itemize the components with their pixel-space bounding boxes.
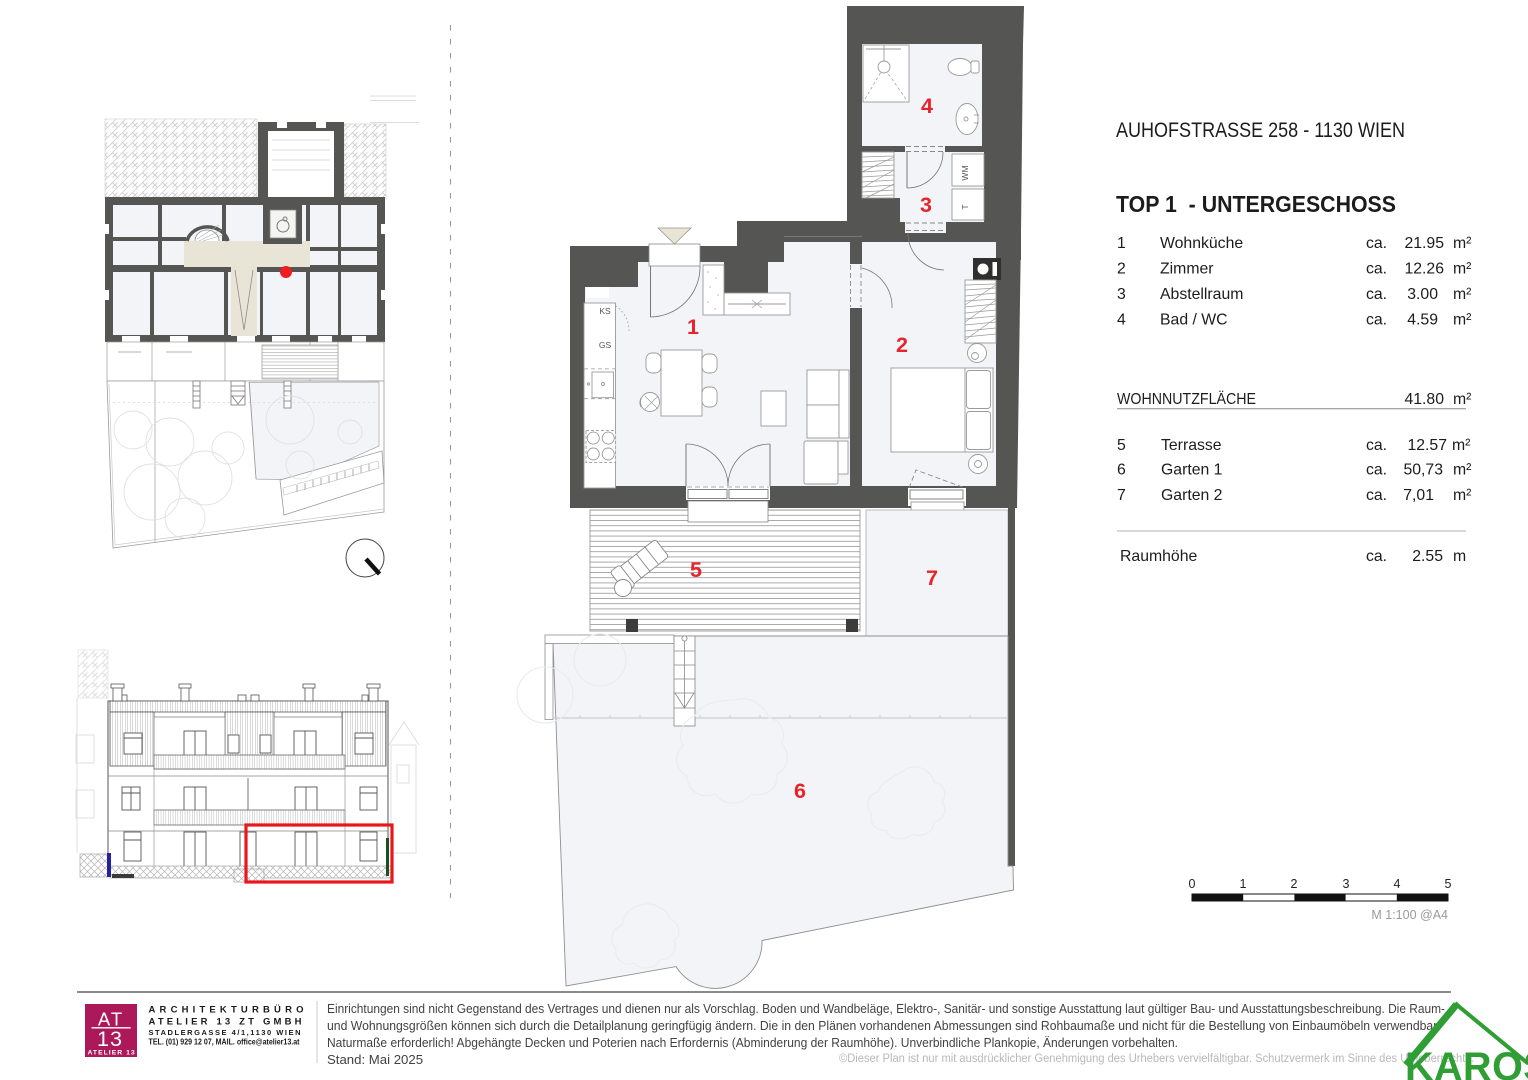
svg-text:Naturmaße erforderlich! Abgehä: Naturmaße erforderlich! Abgehängte Decke… [327,1035,1178,1050]
svg-text:13: 13 [97,1027,123,1051]
svg-text:6: 6 [1117,462,1126,479]
svg-text:3: 3 [1343,877,1350,891]
svg-text:7,01: 7,01 [1403,487,1434,504]
svg-text:Wohnküche: Wohnküche [1160,235,1243,252]
svg-text:Garten 1: Garten 1 [1161,462,1223,479]
svg-text:Bad / WC: Bad / WC [1160,312,1228,329]
svg-text:4: 4 [1117,312,1126,329]
svg-text:m: m [1453,548,1466,565]
svg-text:0: 0 [1189,877,1196,891]
svg-text:ATELIER 13: ATELIER 13 [88,1050,136,1057]
svg-text:ca.: ca. [1366,312,1387,329]
svg-text:12.57: 12.57 [1407,437,1447,454]
svg-text:7: 7 [1117,487,1126,504]
svg-text:3.00: 3.00 [1407,286,1438,303]
svg-text:41.80: 41.80 [1404,391,1444,408]
svg-text:Einrichtungen sind nicht Gegen: Einrichtungen sind nicht Gegenstand des … [327,1001,1445,1016]
svg-text:ARCHITEKTURBÜRO: ARCHITEKTURBÜRO [149,1005,304,1016]
svg-text:Terrasse: Terrasse [1161,437,1222,454]
svg-text:2: 2 [1291,877,1298,891]
svg-text:Zimmer: Zimmer [1160,261,1214,278]
svg-text:2.55: 2.55 [1412,548,1443,565]
svg-text:m²: m² [1453,391,1471,408]
svg-text:5: 5 [1117,437,1126,454]
svg-text:ca.: ca. [1366,437,1387,454]
svg-text:ca.: ca. [1366,462,1387,479]
svg-text:ATELIER 13 ZT GMBH: ATELIER 13 ZT GMBH [149,1017,302,1028]
svg-text:m²: m² [1452,437,1470,454]
svg-text:STADLERGASSE 4/1,1130 WIEN: STADLERGASSE 4/1,1130 WIEN [149,1028,301,1037]
svg-text:KAROS: KAROS [1405,1045,1528,1080]
svg-text:Raumhöhe: Raumhöhe [1120,548,1197,565]
svg-text:T: T [960,204,970,209]
svg-text:6: 6 [794,779,806,803]
svg-text:M 1:100 @A4: M 1:100 @A4 [1371,908,1448,922]
svg-text:2: 2 [1117,261,1126,278]
svg-text:m²: m² [1453,312,1471,329]
svg-text:GS: GS [599,340,612,350]
svg-text:3: 3 [920,193,932,217]
svg-text:Garten 2: Garten 2 [1161,487,1222,504]
svg-text:KS: KS [599,306,611,316]
svg-text:1: 1 [687,315,699,339]
svg-text:ca.: ca. [1366,261,1387,278]
svg-text:4: 4 [921,94,933,118]
svg-text:4.59: 4.59 [1407,312,1438,329]
svg-text:1: 1 [1117,235,1126,252]
svg-text:5: 5 [1445,877,1452,891]
svg-text:ca.: ca. [1366,487,1387,504]
svg-text:Abstellraum: Abstellraum [1160,286,1243,303]
svg-text:m²: m² [1453,261,1471,278]
svg-text:und Wohnungsgrößen können sich: und Wohnungsgrößen können sich durch die… [327,1018,1440,1033]
svg-text:m²: m² [1453,462,1471,479]
svg-text:3: 3 [1117,286,1126,303]
svg-text:m²: m² [1453,487,1471,504]
svg-text:©Dieser Plan ist nur mit ausdr: ©Dieser Plan ist nur mit ausdrücklicher … [839,1051,1474,1065]
svg-text:ca.: ca. [1366,548,1387,565]
svg-text:50,73: 50,73 [1403,462,1443,479]
svg-text:AUHOFSTRASSE 258 - 1130 WIEN: AUHOFSTRASSE 258 - 1130 WIEN [1116,119,1405,142]
svg-text:Stand: Mai 2025: Stand: Mai 2025 [327,1052,423,1067]
svg-text:TOP 1 - UNTERGESCHOSS: TOP 1 - UNTERGESCHOSS [1116,191,1396,217]
svg-text:4: 4 [1394,877,1401,891]
svg-text:ca.: ca. [1366,235,1387,252]
svg-text:TEL. (01) 929 12 07, MAIL. off: TEL. (01) 929 12 07, MAIL. office@atelie… [149,1038,300,1047]
svg-text:ca.: ca. [1366,286,1387,303]
svg-text:5: 5 [690,558,702,582]
svg-text:21.95: 21.95 [1404,235,1444,252]
svg-text:12.26: 12.26 [1404,261,1444,278]
svg-text:m²: m² [1453,235,1471,252]
svg-text:1: 1 [1240,877,1247,891]
svg-text:WOHNNUTZFLÄCHE: WOHNNUTZFLÄCHE [1117,390,1256,408]
svg-text:7: 7 [926,566,938,590]
svg-text:m²: m² [1453,286,1471,303]
svg-text:2: 2 [896,333,908,357]
svg-text:WM: WM [960,165,970,180]
